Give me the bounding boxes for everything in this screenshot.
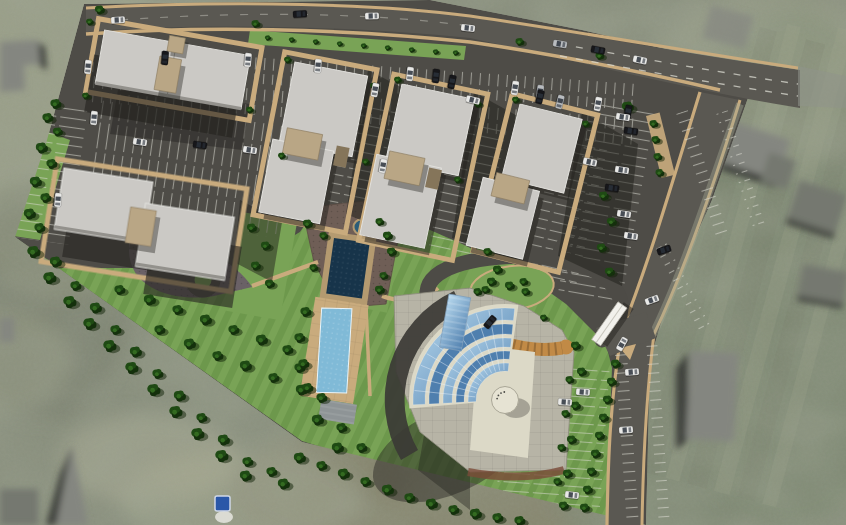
parked-car [565, 491, 580, 500]
site-sign [215, 496, 233, 523]
parked-car [111, 16, 125, 25]
drum-dot [503, 391, 505, 393]
clubhouse-drum [492, 387, 519, 414]
site-plan-rendering [0, 0, 846, 525]
parked-car [160, 51, 169, 66]
parked-car [619, 426, 634, 435]
aerial-render-canvas [0, 0, 846, 525]
parked-car [243, 53, 252, 68]
parked-car [576, 388, 591, 397]
parked-car [89, 111, 98, 126]
rooftop-penthouse [125, 207, 156, 247]
parked-car [558, 398, 573, 407]
parked-car [431, 69, 440, 84]
context-building-east-3 [676, 351, 738, 450]
parked-car [365, 12, 379, 20]
context-building-south-corner [0, 489, 38, 525]
parked-car [405, 67, 414, 82]
parked-car [461, 24, 476, 33]
parked-car [313, 59, 322, 74]
drum-dot [500, 392, 502, 394]
drum-dot [496, 398, 498, 400]
parked-car [293, 10, 307, 19]
parked-car [53, 193, 62, 208]
parked-car [625, 368, 640, 377]
sign-base [215, 511, 233, 523]
drum-dot [498, 395, 500, 397]
rooftop-penthouse [167, 35, 186, 54]
sign-panel [215, 496, 230, 511]
parked-car [83, 60, 92, 75]
context-building-west [0, 318, 14, 342]
